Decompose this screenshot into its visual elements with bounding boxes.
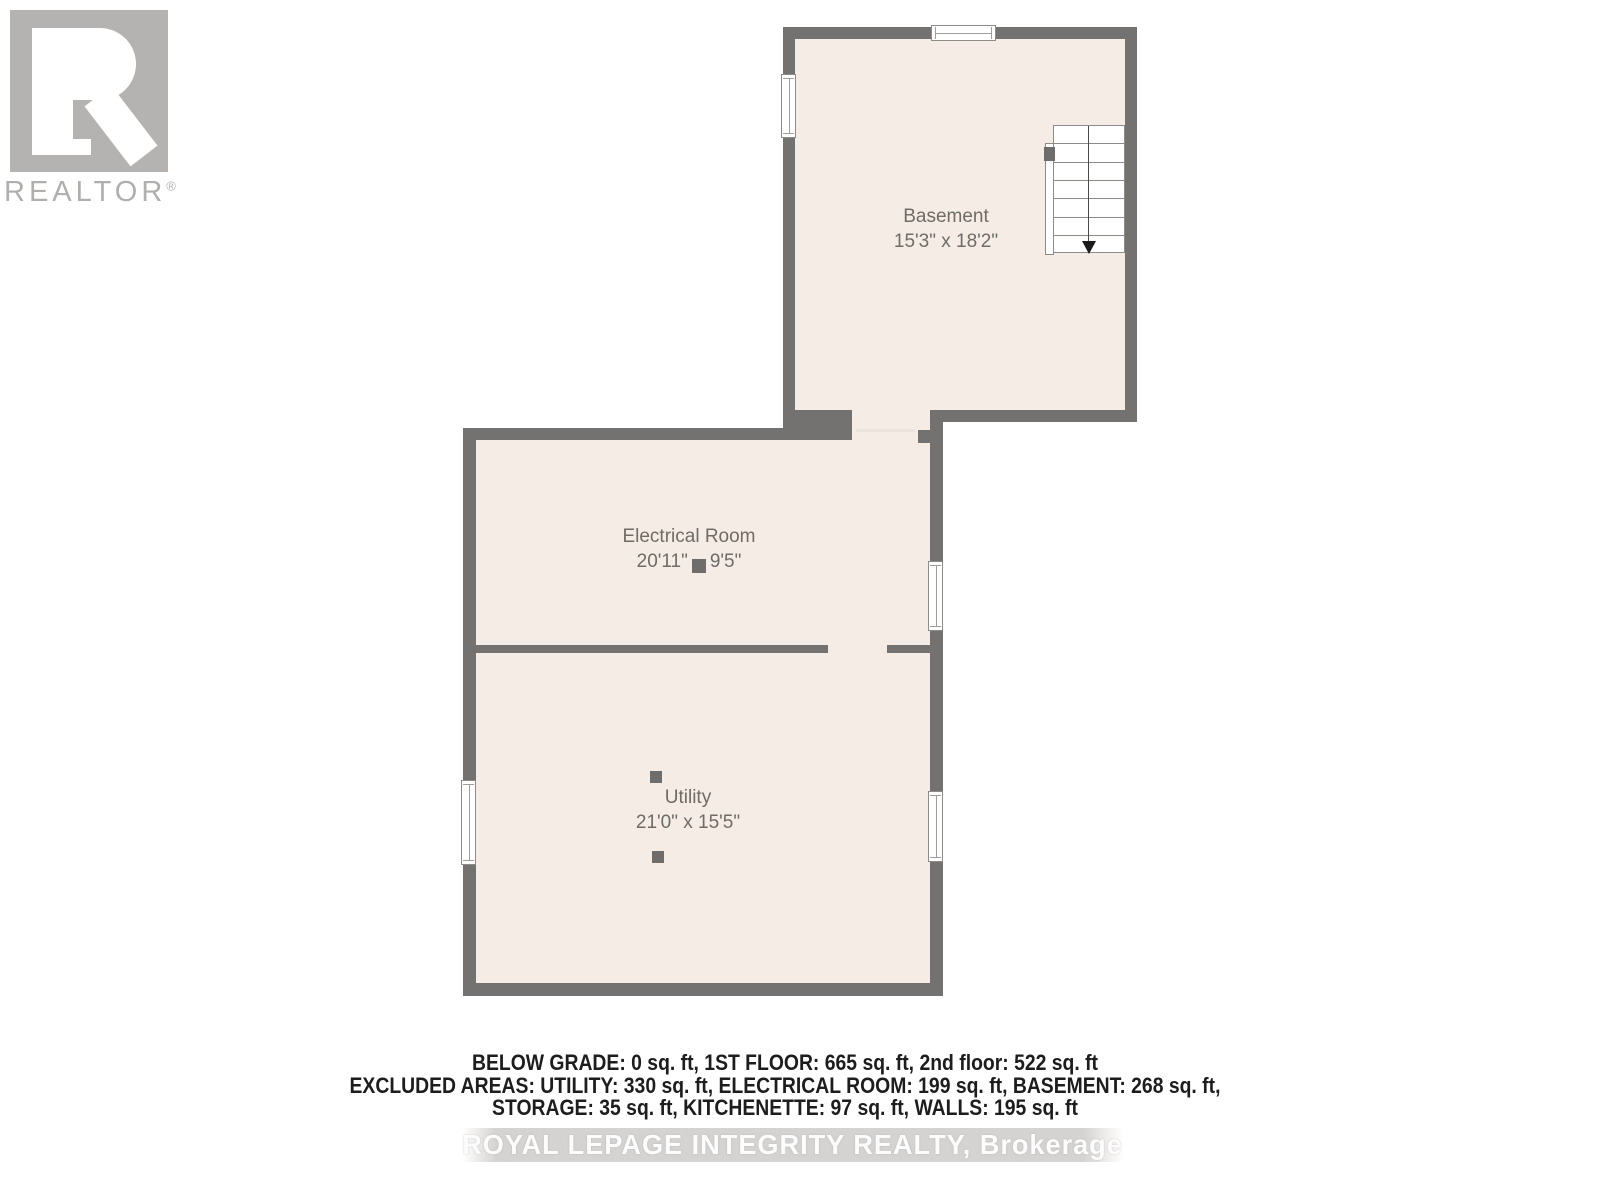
- electrical-panel-icon: [692, 559, 706, 573]
- utility-room-dimensions: 21'0" x 15'5": [578, 811, 798, 835]
- basement-room-dimensions: 15'3" x 18'2": [836, 230, 1056, 254]
- wall-divider-right-segment: [887, 645, 930, 653]
- stair-down-arrow-icon: [1082, 241, 1096, 254]
- electrical-room-label: Electrical Room 20'11" 9'5": [579, 525, 799, 574]
- basement-top-window: [931, 25, 996, 41]
- stair-tread: [1054, 143, 1124, 144]
- floorplan-canvas: REALTOR® Basement 15'3" x 18'2" Electric…: [0, 0, 1600, 1200]
- stair-tread: [1054, 235, 1124, 236]
- wall-divider-left-segment: [476, 645, 828, 653]
- electrical-room-dimensions: 20'11" 9'5": [579, 550, 799, 574]
- wall-doorjamb-nub: [918, 430, 930, 443]
- realtor-r-icon: [10, 10, 168, 172]
- wall-lower-right: [930, 412, 943, 996]
- area-summary-line-1: BELOW GRADE: 0 sq. ft, 1ST FLOOR: 665 sq…: [94, 1052, 1476, 1075]
- electrical-dim-depth: 9'5": [710, 550, 742, 574]
- utility-right-window: [928, 791, 943, 862]
- wall-utility-bottom: [463, 983, 943, 996]
- realtor-wordmark: REALTOR: [4, 176, 166, 208]
- area-summary-line-3: STORAGE: 35 sq. ft, KITCHENETTE: 97 sq. …: [94, 1097, 1476, 1120]
- electrical-dim-width: 20'11": [637, 550, 688, 574]
- staircase: [1053, 125, 1125, 253]
- realtor-logo-label: REALTOR®: [4, 176, 194, 209]
- wall-basement-bottom: [930, 410, 1137, 422]
- stair-tread: [1054, 198, 1124, 199]
- basement-room-name: Basement: [836, 205, 1056, 229]
- doorway-threshold: [856, 429, 915, 432]
- realtor-logo: [10, 10, 168, 172]
- wall-lower-left: [463, 428, 476, 996]
- utility-left-window: [461, 780, 476, 865]
- stair-newel-post-icon: [1044, 147, 1055, 161]
- wall-electrical-top: [463, 428, 852, 440]
- area-summary-line-2: EXCLUDED AREAS: UTILITY: 330 sq. ft, ELE…: [94, 1075, 1476, 1098]
- utility-fixture-icon: [650, 771, 662, 783]
- utility-room-label: Utility 21'0" x 15'5": [578, 786, 798, 835]
- registered-trademark-symbol: ®: [166, 178, 176, 193]
- wall-basement-right: [1125, 27, 1137, 422]
- stair-tread: [1054, 162, 1124, 163]
- stair-tread: [1054, 180, 1124, 181]
- brokerage-watermark: ROYAL LEPAGE INTEGRITY REALTY, Brokerage: [463, 1128, 1123, 1162]
- stair-direction-line: [1088, 126, 1089, 242]
- utility-room-name: Utility: [578, 786, 798, 810]
- electrical-room-name: Electrical Room: [579, 525, 799, 549]
- electrical-right-window: [928, 561, 943, 631]
- area-summary: BELOW GRADE: 0 sq. ft, 1ST FLOOR: 665 sq…: [0, 1052, 1570, 1120]
- basement-left-window: [781, 74, 796, 138]
- brokerage-watermark-text: ROYAL LEPAGE INTEGRITY REALTY, Brokerage: [463, 1129, 1124, 1161]
- stair-tread: [1054, 217, 1124, 218]
- utility-fixture-icon: [652, 851, 664, 863]
- basement-label: Basement 15'3" x 18'2": [836, 205, 1056, 254]
- lower-rooms-floor: [476, 440, 930, 983]
